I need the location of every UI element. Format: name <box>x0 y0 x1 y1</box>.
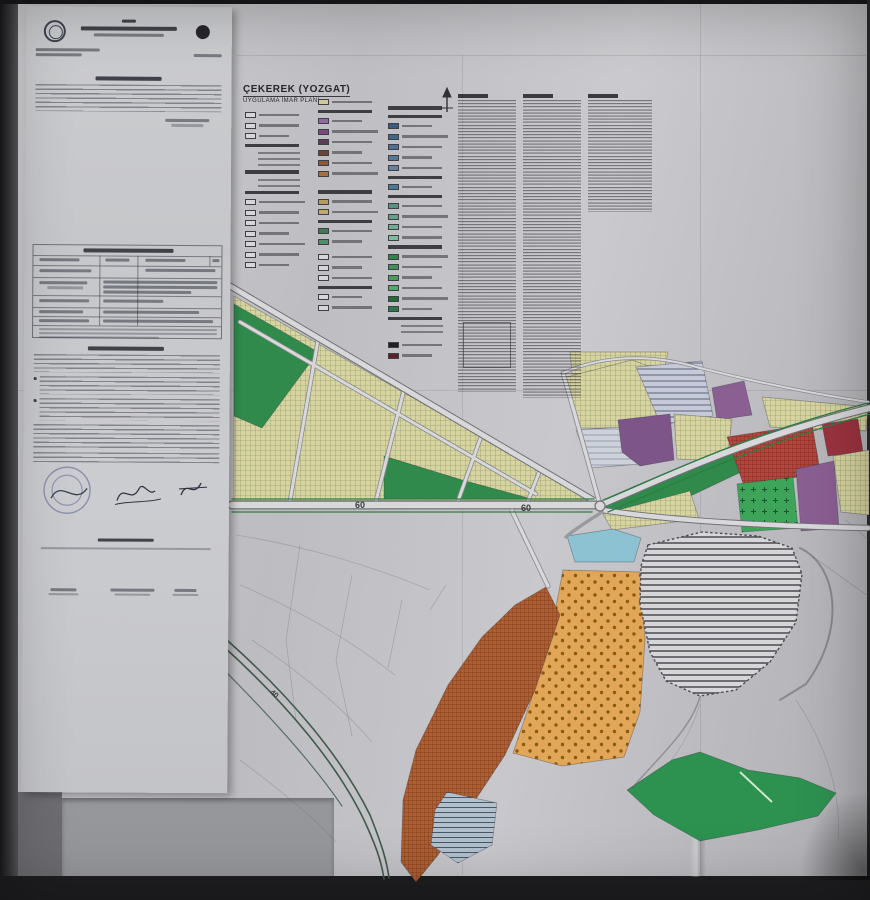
legend-item <box>318 129 390 135</box>
legend-item <box>388 123 460 129</box>
attached-document <box>21 6 232 793</box>
legend-item <box>388 224 460 230</box>
legend-section-header <box>388 115 442 119</box>
legend-item <box>245 262 317 268</box>
legend-item <box>388 134 460 140</box>
legend-section-header <box>245 144 299 148</box>
legend-item <box>388 353 460 359</box>
legend-item <box>388 144 460 150</box>
legend-item <box>388 264 460 270</box>
legend-label <box>332 256 372 259</box>
legend-item <box>245 252 317 258</box>
legend-label <box>332 141 372 144</box>
legend-item <box>388 285 460 291</box>
legend-item <box>318 275 390 281</box>
legend-section-header <box>318 110 372 114</box>
legend-item <box>245 241 317 247</box>
legend-section-header <box>318 220 372 224</box>
zone-hatch-far-right <box>833 450 869 515</box>
legend-sub-line <box>258 164 300 166</box>
legend-label <box>402 266 442 269</box>
legend-label <box>402 186 432 189</box>
legend-section-header <box>245 170 299 174</box>
legend-label <box>259 222 299 225</box>
doc-decision-table <box>32 244 223 339</box>
legend-swatch <box>318 305 329 311</box>
legend-label <box>259 211 299 214</box>
legend-label <box>402 167 442 170</box>
doc-signer-title <box>172 594 198 596</box>
legend-label <box>332 266 362 269</box>
legend-swatch <box>318 254 329 260</box>
doc-signer-name <box>174 589 196 592</box>
legend-column-3 <box>388 102 460 363</box>
zone-pond-blue <box>567 529 641 562</box>
legend-item <box>388 254 460 260</box>
legend-swatch <box>388 203 399 209</box>
doc-list-bullet <box>34 399 37 402</box>
legend-swatch <box>388 134 399 140</box>
legend-swatch <box>245 112 256 118</box>
legend-item <box>388 306 460 312</box>
legend-item <box>245 231 317 237</box>
legend-item <box>318 118 390 124</box>
legend-label <box>259 232 289 235</box>
legend-section-header <box>388 195 442 199</box>
legend-item <box>318 254 390 260</box>
legend-label <box>402 205 442 208</box>
legend-label <box>259 253 299 256</box>
doc-subject-line <box>36 53 82 56</box>
doc-paragraph <box>34 354 220 373</box>
legend-swatch <box>388 275 399 281</box>
legend-item <box>388 184 460 190</box>
legend-label <box>332 130 378 133</box>
legend-swatch <box>245 252 256 258</box>
doc-letterhead-line <box>81 26 177 30</box>
legend-swatch <box>388 214 399 220</box>
legend-item <box>318 228 390 234</box>
legend-swatch <box>318 129 329 135</box>
legend-item <box>318 199 390 205</box>
doc-heading <box>88 346 164 350</box>
legend-label <box>259 124 299 127</box>
legend-section-header <box>388 245 442 249</box>
legend-item <box>318 150 390 156</box>
municipality-logo-icon <box>44 20 66 42</box>
legend-label <box>332 101 372 104</box>
legend-label <box>259 114 299 117</box>
legend-item <box>245 123 317 129</box>
legend-item <box>318 99 390 105</box>
legend-gap <box>318 181 390 186</box>
legend-swatch <box>318 99 329 105</box>
legend-swatch <box>318 171 329 177</box>
legend-swatch <box>245 231 256 237</box>
legend-swatch <box>318 209 329 215</box>
legend-label <box>402 255 448 258</box>
legend-label <box>259 135 289 138</box>
legend-swatch <box>388 296 399 302</box>
legend-item <box>318 265 390 271</box>
legend-section-header <box>245 191 299 195</box>
legend-swatch <box>245 199 256 205</box>
legend-sub-line <box>258 179 300 181</box>
plan-notes-heading <box>523 94 553 98</box>
legend-swatch <box>245 133 256 139</box>
legend-label <box>402 297 448 300</box>
legend-swatch <box>388 235 399 241</box>
plan-notes-column-2 <box>523 100 581 398</box>
legend-section-header <box>388 176 442 180</box>
legend-swatch <box>388 165 399 171</box>
zone-forest-green <box>627 752 836 841</box>
legend-swatch <box>388 342 399 348</box>
legend-label <box>402 236 442 239</box>
legend-label <box>332 277 372 280</box>
legend-item <box>388 296 460 302</box>
legend-swatch <box>318 118 329 124</box>
legend-label <box>332 172 378 175</box>
legend-label <box>402 354 432 357</box>
legend-item <box>318 160 390 166</box>
legend-sub-line <box>258 185 300 187</box>
legend-swatch <box>388 285 399 291</box>
legend-label <box>332 162 372 165</box>
legend-swatch <box>245 210 256 216</box>
legend-label <box>402 276 432 279</box>
legend-swatch <box>318 139 329 145</box>
ministry-logo-icon <box>196 25 210 39</box>
legend-item <box>245 199 317 205</box>
doc-letterhead-line <box>94 33 164 36</box>
road-40 <box>222 641 389 879</box>
doc-signer-name <box>50 588 76 591</box>
legend-swatch <box>318 239 329 245</box>
doc-date <box>194 54 222 57</box>
zone-purple-top <box>712 381 752 420</box>
legend-swatch <box>245 241 256 247</box>
legend-label <box>402 125 432 128</box>
doc-paragraph <box>33 424 219 449</box>
legend-label <box>402 215 448 218</box>
legend-item <box>388 235 460 241</box>
legend-swatch <box>388 144 399 150</box>
legend-label <box>332 296 362 299</box>
doc-signature-name <box>165 119 209 122</box>
legend-swatch <box>388 306 399 312</box>
legend-item <box>388 275 460 281</box>
legend-column-2 <box>318 99 390 315</box>
legend-swatch <box>318 150 329 156</box>
photo-of-zoning-plan: ÇEKEREK (YOZGAT) UYGULAMA İMAR PLANI <box>0 0 870 900</box>
legend-item <box>318 171 390 177</box>
road-label-60-east: 60 <box>521 503 531 513</box>
legend-label <box>402 226 442 229</box>
plan-notes-heading <box>458 94 488 98</box>
legend-swatch <box>318 294 329 300</box>
doc-heading <box>96 76 162 80</box>
plan-notes-heading <box>588 94 618 98</box>
legend-section-header <box>388 317 442 321</box>
legend-item <box>318 305 390 311</box>
legend-item <box>245 133 317 139</box>
legend-swatch <box>388 254 399 260</box>
legend-swatch <box>318 199 329 205</box>
doc-signer-title <box>114 594 150 596</box>
legend-swatch <box>318 228 329 234</box>
legend-item <box>318 239 390 245</box>
legend-item <box>245 112 317 118</box>
doc-letterhead-line <box>122 20 136 23</box>
legend-label <box>332 240 362 243</box>
doc-ref-number-line <box>36 48 100 51</box>
legend-label <box>332 306 372 309</box>
legend-label <box>332 120 362 123</box>
doc-paragraph <box>40 376 220 395</box>
plan-notes-column-3 <box>588 100 652 212</box>
legend-label <box>259 201 305 204</box>
legend-label <box>402 308 432 311</box>
plan-notes-boxed-note <box>463 322 511 368</box>
legend-item <box>318 294 390 300</box>
zone-purple-right <box>796 461 839 531</box>
legend-item <box>388 342 460 348</box>
legend-label <box>402 135 448 138</box>
legend-item <box>388 165 460 171</box>
legend-swatch <box>245 262 256 268</box>
legend-swatch <box>388 184 399 190</box>
legend-item <box>388 155 460 161</box>
legend-section-header <box>388 106 442 110</box>
legend-swatch <box>388 264 399 270</box>
legend-label <box>332 211 378 214</box>
legend-item <box>245 210 317 216</box>
legend-item <box>318 139 390 145</box>
legend-label <box>332 151 362 154</box>
map-title: ÇEKEREK (YOZGAT) <box>243 84 350 97</box>
legend-label <box>402 287 442 290</box>
road-label-60-west: 60 <box>355 500 365 510</box>
doc-paragraph <box>39 398 219 421</box>
doc-paragraph <box>35 84 221 112</box>
legend-swatch <box>388 224 399 230</box>
doc-line <box>41 547 211 550</box>
doc-signer-name <box>110 589 154 592</box>
legend-label <box>332 200 372 203</box>
doc-list-bullet <box>34 377 37 380</box>
legend-label <box>332 230 372 233</box>
legend-item <box>245 220 317 226</box>
doc-signer-title <box>48 593 78 595</box>
zone-dark-red <box>822 419 863 456</box>
legend-label <box>259 264 289 267</box>
plan-notes-column-1 <box>458 100 516 392</box>
doc-stamp-and-signatures <box>31 458 221 529</box>
legend-section-header <box>318 286 372 290</box>
doc-heading <box>98 538 154 541</box>
legend-item <box>388 214 460 220</box>
legend-swatch <box>318 265 329 271</box>
legend-swatch <box>388 123 399 129</box>
legend-section-header <box>318 190 372 194</box>
doc-signature-title <box>171 124 203 127</box>
legend-sub-line <box>258 158 300 160</box>
legend-column-1 <box>245 112 317 273</box>
legend-label <box>402 146 442 149</box>
legend-label <box>402 156 432 159</box>
legend-swatch <box>388 155 399 161</box>
legend-item <box>318 209 390 215</box>
legend-swatch <box>388 353 399 359</box>
legend-sub-line <box>401 331 443 333</box>
legend-swatch <box>318 160 329 166</box>
zone-blue-striped <box>431 792 497 863</box>
legend-item <box>388 203 460 209</box>
legend-sub-line <box>401 325 443 327</box>
legend-swatch <box>318 275 329 281</box>
legend-sub-line <box>258 152 300 154</box>
legend-swatch <box>245 220 256 226</box>
legend-swatch <box>245 123 256 129</box>
legend-label <box>259 243 305 246</box>
legend-label <box>402 344 442 347</box>
zone-pasture-striped-blob <box>640 532 802 696</box>
